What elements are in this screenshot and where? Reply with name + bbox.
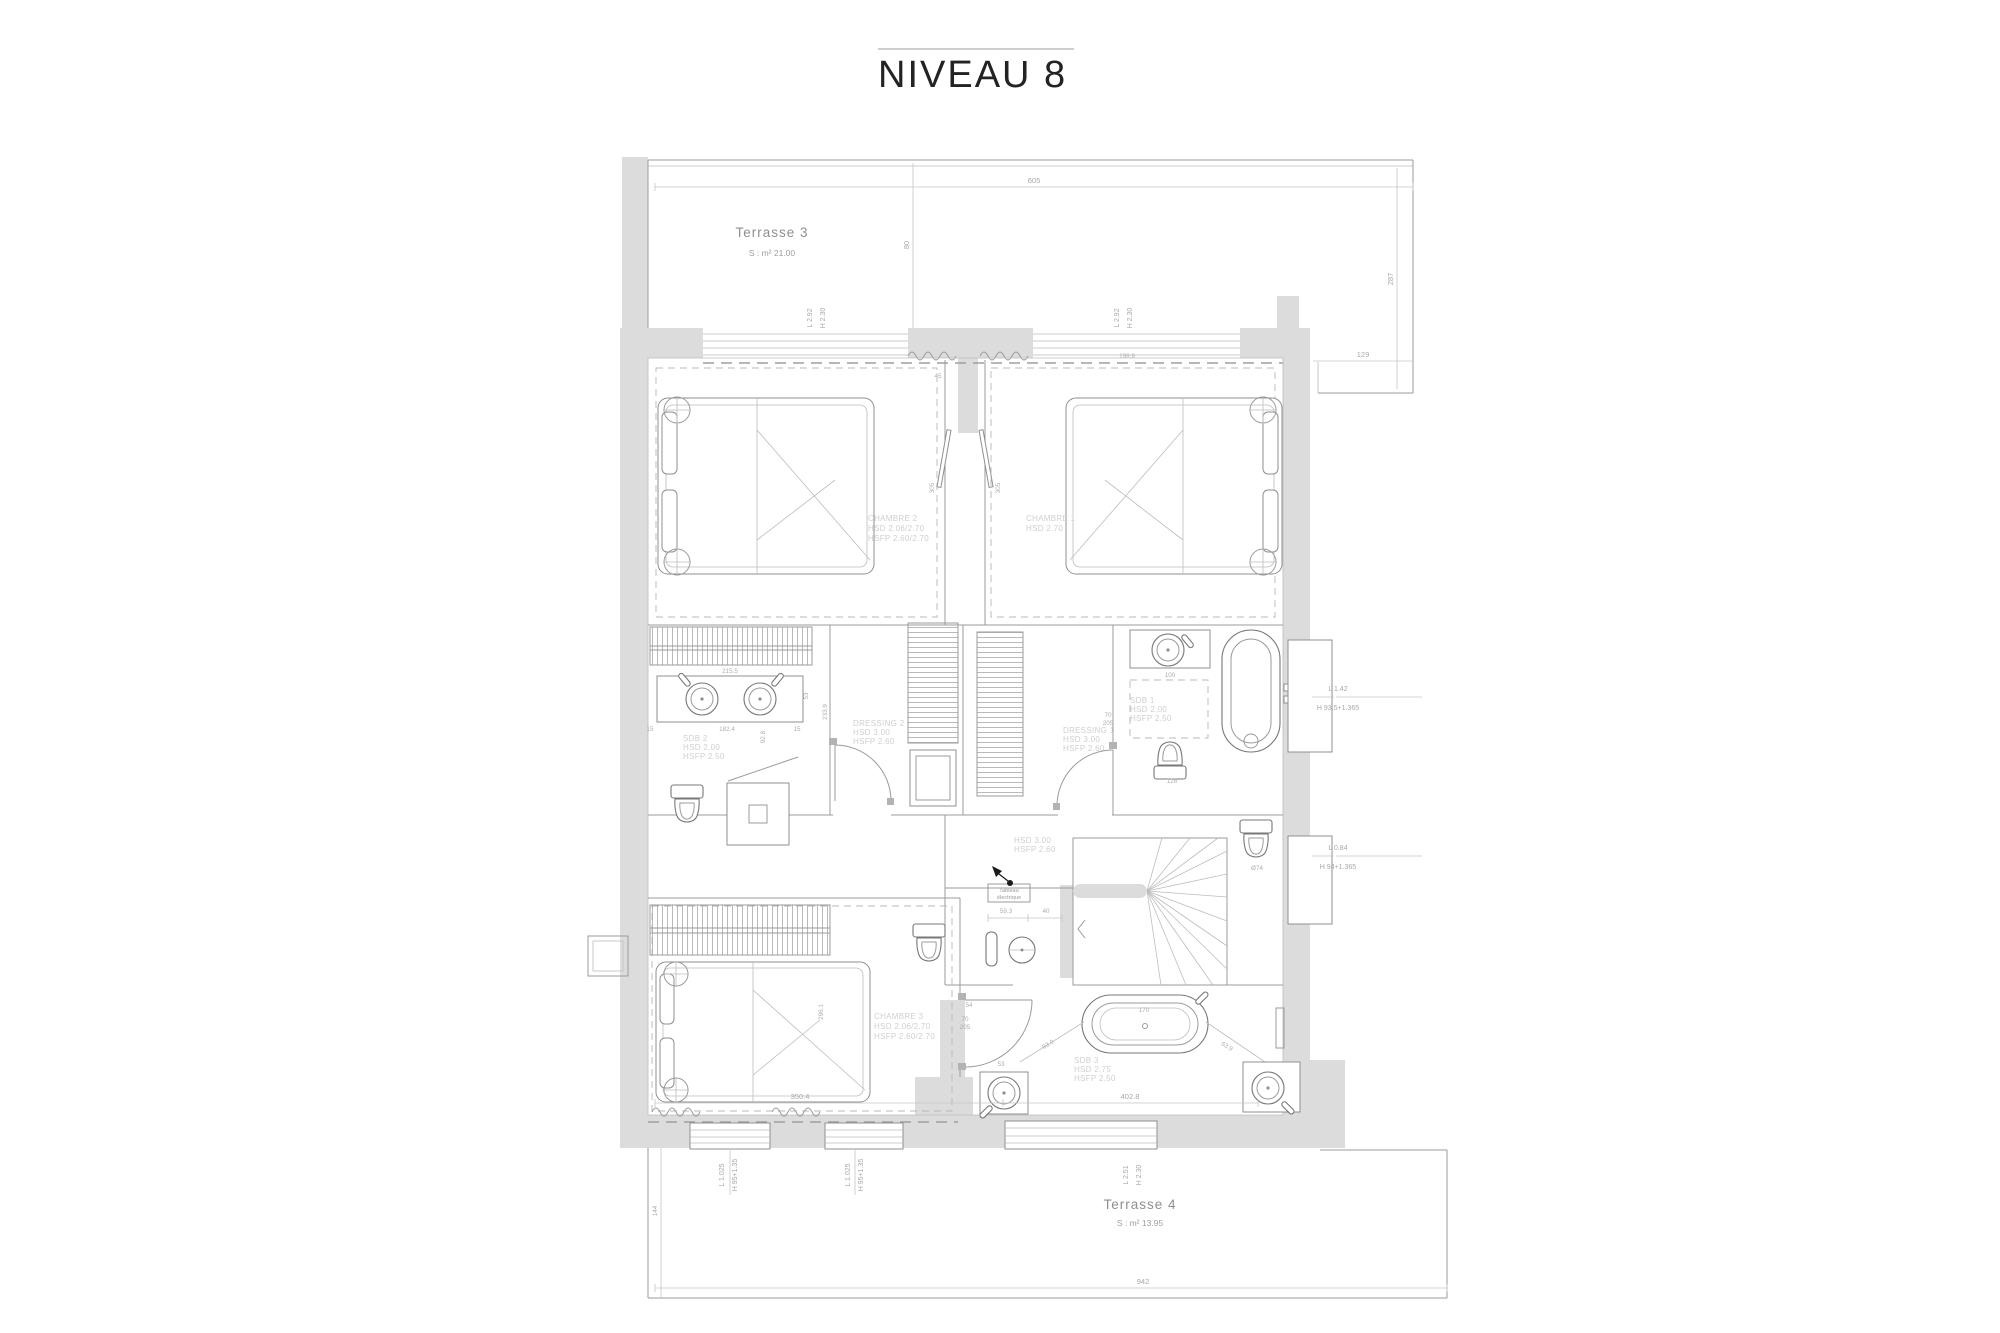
chambre-2: CHAMBRE 2 HSD 2.06/2.70 HSFP 2.60/2.70 3… (656, 368, 1002, 617)
dim-edge-right: 15 (793, 726, 801, 733)
wall-niche (1288, 640, 1332, 752)
dim-terrace3-width: 605 (1028, 176, 1041, 185)
bay-terrace4-l: L 2.51 (1123, 1165, 1130, 1184)
bed-double (1066, 398, 1282, 574)
dim-hall-b: 40 (1042, 908, 1050, 915)
chambre3-name: CHAMBRE 3 (874, 1012, 924, 1021)
dim-edge-left: 15 (646, 726, 654, 733)
double-vanity (657, 672, 803, 722)
dim-vanity2-depth: 53 (803, 692, 810, 700)
niche-wc-h: H 94+1.365 (1320, 864, 1356, 871)
chambre3-hsd: HSD 2.06/2.70 (874, 1022, 931, 1031)
niche-wc-l: L 0.84 (1328, 845, 1347, 852)
sdb2-name: SDB 2 (683, 734, 708, 743)
dim-dressing2-height: 233.9 (822, 704, 829, 720)
dressing-1: DRESSING 1 HSD 3.00 HSFP 2.60 70 205 (977, 632, 1117, 810)
window-top-right-l: L 2.92 (1114, 308, 1121, 327)
dim-vanity2-bottom: 182.4 (719, 726, 735, 733)
dim-partition-left: 305 (929, 482, 936, 493)
chambre2-hsfp: HSFP 2.60/2.70 (868, 534, 929, 543)
window-top-left-h: H 2.30 (820, 308, 827, 329)
sdb3-hsd: HSD 2.75 (1074, 1065, 1111, 1074)
toilet (1154, 742, 1186, 779)
hall-hsd: HSD 3.00 (1014, 836, 1051, 845)
toilet (913, 924, 945, 961)
electrical-panel-line1: Tableau (999, 888, 1019, 894)
cabinet (910, 750, 956, 806)
chambre2-hsd: HSD 2.06/2.70 (868, 524, 925, 533)
washbasin (1008, 937, 1036, 963)
staircase (1073, 838, 1227, 985)
terrace-4: L 2.51 H 2.30 Terrasse 4 S : m² 13.95 14… (648, 1148, 1447, 1298)
wall-niche (1288, 836, 1332, 924)
switch-symbol (992, 866, 1013, 886)
toilet (1240, 820, 1272, 857)
terrace4-name: Terrasse 4 (1103, 1197, 1176, 1212)
bathtub (1082, 991, 1209, 1053)
shower (727, 757, 798, 845)
dim-wc1-width: 128 (1167, 778, 1178, 785)
electrical-panel: Tableau électrique (988, 884, 1030, 902)
sdb1-hsfp: HSFP 2.50 (1130, 714, 1172, 723)
dim-wc2-dia: Ø74 (1251, 865, 1263, 872)
dressing2-hsd: HSD 3.00 (853, 728, 890, 737)
terrace4-area: S : m² 13.95 (1117, 1218, 1164, 1228)
dressing2-name: DRESSING 2 (853, 719, 905, 728)
dim-hall-a: 59.3 (1000, 908, 1013, 915)
niche-bath-h: H 93.5+1.365 (1317, 705, 1359, 712)
sdb2-hsfp: HSFP 2.50 (683, 752, 725, 761)
door-height: 205 (960, 1024, 971, 1031)
terrace3-name: Terrasse 3 (735, 225, 808, 240)
chambre-1: CHAMBRE 1 HSD 2.70 (991, 368, 1282, 617)
dim-chambre3-width: 350.4 (791, 1092, 810, 1101)
sdb-2: 215.5 182.4 53 15 15 SDB 2 HSD 2.00 HSFP… (646, 627, 812, 845)
bed-double (658, 398, 874, 574)
floor-plan-page: NIVEAU 8 (0, 0, 2000, 1333)
door-width: 70 (961, 1016, 969, 1023)
window-bottom-1-l: L 1.025 (719, 1163, 726, 1186)
dim-diag-left: 63.9 (1041, 1038, 1056, 1051)
sdb2-hsd: HSD 2.00 (683, 743, 720, 752)
sdb1-name: SDB 1 (1130, 696, 1155, 705)
door-width: 70 (1104, 712, 1112, 719)
door-height: 205 (1103, 720, 1114, 727)
window (825, 1123, 903, 1149)
dim-vanity2-top: 215.5 (722, 668, 738, 675)
dim-ceiling-line: 198.9 (1119, 353, 1135, 360)
vanity (1130, 630, 1210, 668)
bay-terrace4-h: H 2.30 (1136, 1165, 1143, 1186)
sdb3-name: SDB 3 (1074, 1056, 1099, 1065)
terrace-door (1005, 1121, 1157, 1149)
dim-terrace4-width: 942 (1137, 1277, 1150, 1286)
sdb-1: 100 SDB 1 HSD 2.00 HSFP 2.50 128 L 1.42 … (1130, 630, 1422, 785)
niche-bath-l: L 1.42 (1328, 686, 1347, 693)
door-swing (829, 738, 894, 805)
terrace3-area: S : m² 21.00 (749, 248, 796, 258)
bed-double (656, 962, 870, 1102)
dim-partition-right: 305 (995, 482, 1002, 493)
window-bottom-2-h: H 95+1.35 (858, 1159, 865, 1192)
wardrobe (650, 905, 830, 955)
dim-sink3-width: 53 (997, 1061, 1005, 1068)
dim-chambre3-height: 296.1 (818, 1004, 825, 1020)
window-top-right-h: H 2.30 (1127, 308, 1134, 329)
chambre-3: CHAMBRE 3 HSD 2.06/2.70 HSFP 2.60/2.70 2… (650, 905, 1032, 1111)
window-top-left-l: L 2.92 (807, 308, 814, 327)
window-bottom-2-l: L 1.025 (845, 1163, 852, 1186)
dim-terrace3-right: 287 (1386, 273, 1395, 286)
dim-terrace3-step: 129 (1357, 350, 1370, 359)
sdb1-hsd: HSD 2.00 (1130, 705, 1167, 714)
dim-pier: 45 (934, 373, 942, 380)
window-bottom-1-h: H 95+1.35 (732, 1159, 739, 1192)
dim-terrace4-left: 144 (652, 1205, 659, 1216)
stair-direction-arrow (1078, 920, 1085, 938)
radiator (986, 932, 997, 966)
chambre2-name: CHAMBRE 2 (868, 514, 918, 523)
sdb3-hsfp: HSFP 2.50 (1074, 1074, 1116, 1083)
dim-terrace3-left: 80 (902, 241, 911, 249)
toilet (671, 785, 703, 822)
shelving (908, 623, 958, 743)
dressing1-hsd: HSD 3.00 (1063, 735, 1100, 744)
chambre3-hsfp: HSFP 2.60/2.70 (874, 1032, 935, 1041)
dressing-2: DRESSING 2 HSD 3.00 HSFP 2.60 233.9 (822, 623, 958, 806)
chambre1-hsd: HSD 2.70 (1026, 524, 1063, 533)
dim-door-c3: 54 (965, 1002, 973, 1009)
shelving (977, 632, 1023, 796)
dim-sdb3-width: 402.8 (1121, 1092, 1140, 1101)
door-leaf (937, 430, 951, 488)
dim-tub3-width: 170 (1139, 1007, 1150, 1014)
dim-sdb2-height: 92.8 (760, 730, 767, 743)
window (690, 1123, 770, 1149)
chambre1-name: CHAMBRE 1 (1026, 514, 1076, 523)
washbasin-left (979, 1072, 1028, 1119)
floor-plan-drawing: Terrasse 3 S : m² 21.00 605 287 129 80 L… (0, 0, 2000, 1333)
hall-stairs: HSD 3.00 HSFP 2.60 Tableau électrique (986, 820, 1422, 985)
dim-diag-right: 63.9 (1220, 1041, 1235, 1054)
electrical-panel-line2: électrique (997, 895, 1021, 901)
hall-hsfp: HSFP 2.60 (1014, 845, 1056, 854)
dressing2-hsfp: HSFP 2.60 (853, 737, 895, 746)
dressing1-name: DRESSING 1 (1063, 726, 1115, 735)
dim-sink1-width: 100 (1165, 672, 1176, 679)
